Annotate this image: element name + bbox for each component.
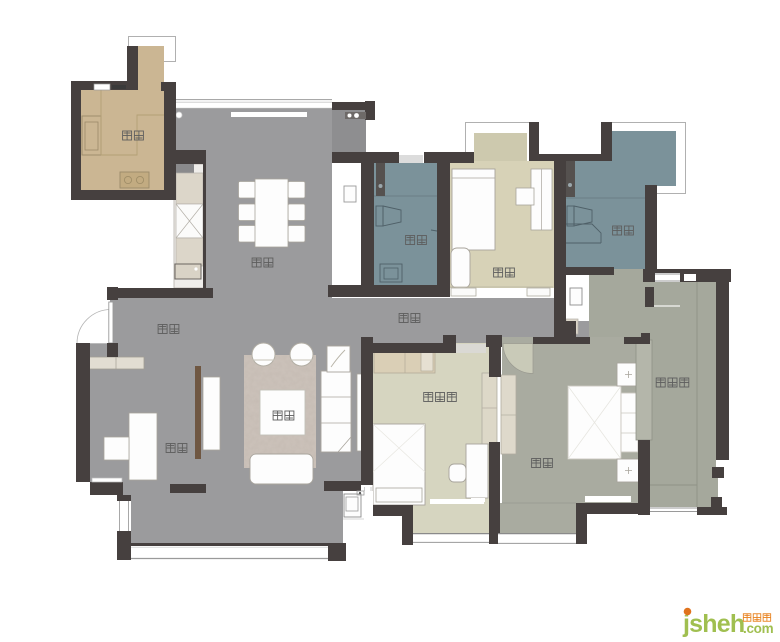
svg-text:.com: .com (743, 621, 774, 636)
